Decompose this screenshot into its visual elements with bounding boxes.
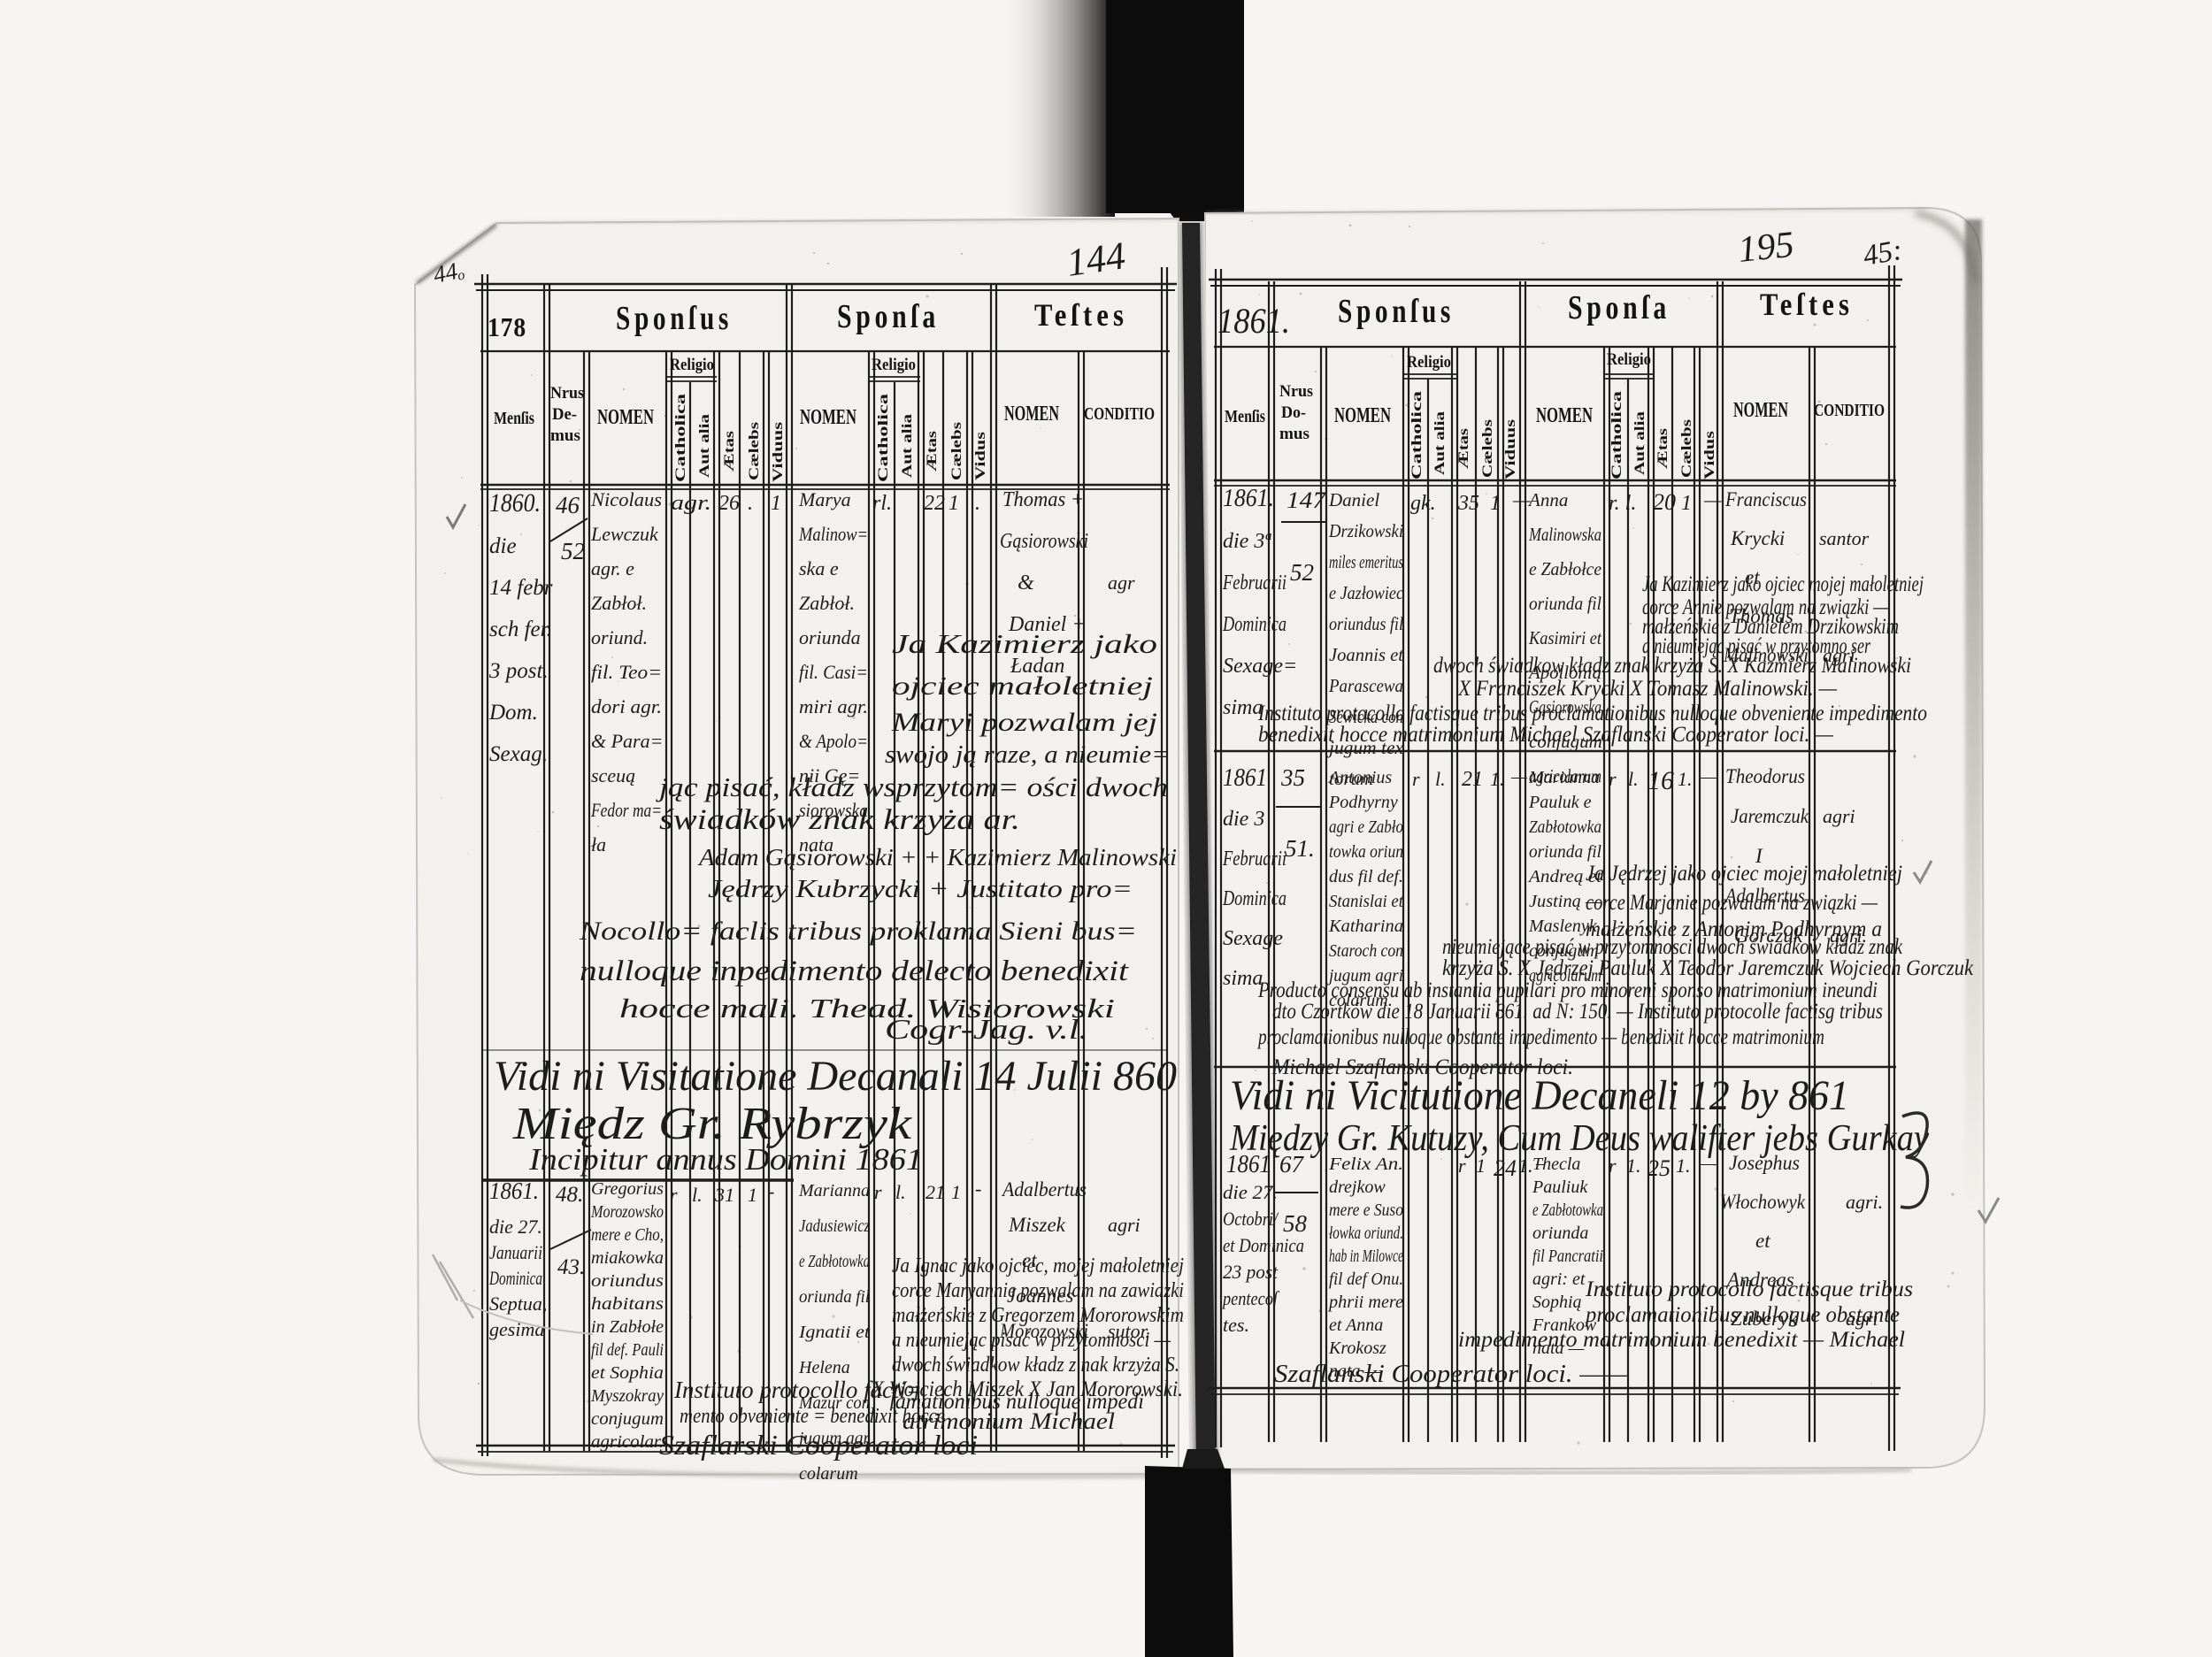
svg-text:oriunda fil: oriunda fil	[1529, 842, 1601, 862]
svg-text:mere e Suso: mere e Suso	[1329, 1201, 1403, 1220]
svg-text:corce Maryannie pozwalam na za: corce Maryannie pozwalam na zawiazki	[892, 1279, 1184, 1302]
svg-text:Vidus: Vidus	[1702, 431, 1717, 479]
svg-text:mere e Cho,: mere e Cho,	[591, 1225, 664, 1245]
svg-text:Dom.: Dom.	[488, 701, 538, 725]
svg-text:phrii mere: phrii mere	[1327, 1293, 1403, 1312]
svg-text:Aut alia: Aut alia	[697, 414, 712, 478]
svg-text:Thomas +: Thomas +	[1002, 488, 1084, 511]
svg-text:NOMEN: NOMEN	[597, 406, 654, 429]
svg-text:fil def Onu.: fil def Onu.	[1329, 1270, 1403, 1289]
svg-text:147: 147	[1286, 487, 1326, 513]
svg-text:NOMEN: NOMEN	[1334, 404, 1391, 427]
svg-text:Ignatii et: Ignatii et	[798, 1323, 871, 1342]
svg-text:Miszek: Miszek	[1008, 1214, 1066, 1236]
svg-text:Zabłotowka: Zabłotowka	[1529, 817, 1601, 837]
svg-text:52: 52	[1290, 559, 1314, 586]
svg-text:.: .	[975, 492, 980, 515]
svg-text:52: 52	[561, 538, 585, 564]
svg-text:impedimento matrimonium bene: impedimento matrimonium benedixit — Mich…	[1458, 1328, 1905, 1352]
svg-text:łowka oriund.: łowka oriund.	[1329, 1224, 1403, 1243]
svg-text:1.: 1.	[1490, 768, 1505, 790]
svg-text:Szaflanski Cooperator loci.: Szaflanski Cooperator loci. ——	[1274, 1360, 1628, 1388]
svg-text:Septua,: Septua,	[489, 1293, 547, 1315]
svg-text:Nicolaus: Nicolaus	[590, 488, 662, 510]
svg-text:Religio: Religio	[1607, 350, 1651, 369]
svg-text:23 post: 23 post	[1223, 1261, 1279, 1283]
svg-text:Kasimiri et: Kasimiri et	[1528, 627, 1602, 648]
svg-text:świadków znak krzyża ar.: świadków znak krzyża ar.	[659, 804, 1020, 836]
svg-text:Januarii: Januarii	[489, 1241, 542, 1263]
svg-text:e Zabłotowka: e Zabłotowka	[799, 1252, 870, 1271]
svg-text:Krokosz: Krokosz	[1328, 1339, 1386, 1358]
svg-text:rl.: rl.	[872, 492, 892, 515]
svg-text:r: r	[670, 1184, 678, 1206]
svg-text:1861.: 1861.	[1217, 301, 1290, 341]
svg-text:Cælebs: Cælebs	[1480, 419, 1495, 478]
svg-text:&: &	[1018, 572, 1034, 595]
svg-text:1: 1	[748, 1184, 757, 1206]
svg-text:Instituto protocollo facti=: Instituto protocollo facti=	[673, 1377, 922, 1403]
svg-text:benedixit hocce matrimonium: benedixit hocce matrimonium Michael Szaf…	[1258, 723, 1834, 747]
svg-text:r: r	[1609, 768, 1617, 790]
svg-text:1.: 1.	[1676, 1155, 1691, 1177]
svg-text:r: r	[1609, 1155, 1617, 1177]
svg-text:Nocollo= faclis tribus prok: Nocollo= faclis tribus proklama Sieni bu…	[579, 917, 1137, 946]
svg-text:drejkow: drejkow	[1329, 1178, 1386, 1197]
svg-text:De-: De-	[552, 405, 577, 424]
svg-text:14 febr: 14 febr	[489, 576, 553, 600]
svg-text:Adalbertus: Adalbertus	[1001, 1178, 1087, 1201]
svg-text:16: 16	[1647, 766, 1674, 795]
svg-text:oriunda: oriunda	[1532, 1224, 1588, 1243]
svg-text:45:: 45:	[1861, 234, 1905, 272]
svg-text:Zabłoł.: Zabłoł.	[799, 592, 855, 614]
svg-text:Teſtes: Teſtes	[1760, 287, 1854, 322]
svg-text:sceuą: sceuą	[591, 764, 635, 786]
svg-text:Krycki: Krycki	[1730, 527, 1785, 549]
svg-text:Ja Kazimierz jako ojciec moj: Ja Kazimierz jako ojciec mojej małoletni…	[1642, 572, 1924, 596]
svg-text:miles emeritus: miles emeritus	[1329, 551, 1403, 572]
svg-text:Nrus: Nrus	[1279, 382, 1313, 401]
svg-text:Pauliuk: Pauliuk	[1532, 1178, 1588, 1197]
svg-text:proclamationibus nullogue ob: proclamationibus nullogue obstante	[1584, 1303, 1900, 1327]
svg-text:l.: l.	[692, 1184, 703, 1206]
svg-text:Włochowyk: Włochowyk	[1720, 1191, 1806, 1213]
svg-text:colarum: colarum	[799, 1464, 858, 1484]
svg-text:Ætas: Ætas	[1655, 428, 1671, 469]
svg-text:Do-: Do-	[1281, 403, 1306, 422]
svg-text:Podhyrny: Podhyrny	[1328, 793, 1398, 812]
svg-text:Marya: Marya	[798, 488, 851, 510]
svg-text:1: 1	[771, 492, 781, 515]
svg-text:& Para=: & Para=	[591, 730, 663, 752]
svg-text:Jaremczuk: Jaremczuk	[1731, 805, 1809, 827]
svg-text:dori agr.: dori agr.	[591, 695, 662, 717]
svg-text:oriundus fil: oriundus fil	[1329, 613, 1403, 634]
svg-text:1: 1	[1681, 492, 1692, 515]
svg-text:Malinowska: Malinowska	[1528, 524, 1601, 545]
svg-text:r: r	[874, 1181, 882, 1203]
svg-text:oriund.: oriund.	[591, 626, 648, 648]
svg-text:Dominica: Dominica	[1222, 887, 1286, 910]
svg-text:Gregorius: Gregorius	[591, 1179, 664, 1199]
svg-text:Aut alia: Aut alia	[1632, 411, 1647, 475]
svg-text:agr.: agr.	[671, 492, 711, 515]
svg-text:Nrus: Nrus	[550, 384, 584, 403]
svg-text:Aut alia: Aut alia	[1432, 411, 1448, 475]
svg-text:proclamationibus nulloque obst: proclamationibus nulloque obstante imped…	[1256, 1025, 1824, 1049]
svg-text:Cælebs: Cælebs	[1679, 419, 1694, 478]
svg-text:Myszokray: Myszokray	[590, 1386, 664, 1406]
svg-text:Franciscus: Franciscus	[1724, 488, 1807, 510]
svg-text:et Anna: et Anna	[1329, 1316, 1383, 1335]
svg-text:43.: 43.	[557, 1255, 585, 1279]
svg-text:małżeńskie z Gregorzem Mororow: małżeńskie z Gregorzem Mororowskim	[892, 1304, 1184, 1327]
svg-text:pentecoſ: pentecoſ	[1221, 1287, 1279, 1309]
svg-text:agr: agr	[1108, 572, 1135, 594]
svg-text:Religio: Religio	[670, 356, 714, 374]
svg-text:CONDITIO: CONDITIO	[1814, 401, 1885, 420]
svg-text:santor: santor	[1819, 527, 1870, 549]
svg-text:agr. e: agr. e	[591, 557, 634, 579]
svg-text:Dominica: Dominica	[488, 1267, 542, 1289]
svg-text:ła: ła	[591, 833, 606, 855]
svg-text:Menſis: Menſis	[1225, 407, 1265, 426]
svg-text:Viduus: Viduus	[771, 422, 786, 482]
svg-text:et: et	[1755, 1230, 1770, 1252]
svg-text:51.: 51.	[1285, 835, 1315, 862]
svg-text:nulloque inpedimento delecto: nulloque inpedimento delecto benedixit	[580, 955, 1129, 987]
svg-text:die 27.: die 27.	[1223, 1181, 1278, 1203]
svg-text:mus: mus	[550, 426, 580, 445]
svg-text:Stanislai et: Stanislai et	[1329, 892, 1403, 911]
svg-text:Menſis: Menſis	[494, 409, 534, 428]
svg-text:—: —	[1510, 767, 1527, 786]
svg-text:Ja Kazimierz jako: Ja Kazimierz jako	[892, 628, 1157, 659]
svg-text:oriundus: oriundus	[591, 1271, 664, 1291]
svg-text:Marianna: Marianna	[798, 1181, 870, 1201]
svg-text:Incipitur annus Domini 1861: Incipitur annus Domini 1861	[528, 1142, 923, 1177]
svg-text:& Apolo=: & Apolo=	[799, 730, 868, 752]
svg-text:Jędrzy Kubrzycki + Justit: Jędrzy Kubrzycki + Justitato pro=	[708, 876, 1133, 903]
svg-text:35: 35	[1457, 492, 1479, 515]
svg-text:Sponſus: Sponſus	[616, 300, 733, 337]
svg-text:48.: 48.	[556, 1183, 583, 1207]
svg-text:-: -	[768, 1180, 774, 1202]
svg-text:Octobri/: Octobri/	[1223, 1208, 1279, 1230]
svg-text:swojo ją raze, a nieumie=: swojo ją raze, a nieumie=	[885, 741, 1170, 769]
svg-text:die 3ª: die 3ª	[1223, 530, 1271, 553]
svg-text:Zabłoł.: Zabłoł.	[591, 592, 647, 614]
svg-text:die 3: die 3	[1223, 808, 1264, 831]
svg-text:agri: agri	[1823, 805, 1855, 827]
svg-text:1.: 1.	[1518, 1155, 1533, 1177]
svg-text:1: 1	[1476, 1155, 1486, 1177]
svg-text:Helena: Helena	[798, 1358, 850, 1377]
svg-text:Religio: Religio	[872, 356, 916, 374]
svg-text:l.: l.	[1435, 768, 1446, 790]
svg-text:—: —	[1512, 488, 1531, 510]
svg-text:Morozowsko: Morozowsko	[590, 1202, 664, 1222]
svg-text:58: 58	[1283, 1210, 1308, 1237]
svg-text:Vidi ni Vicitutione Decaneli: Vidi ni Vicitutione Decaneli 12 by 861	[1230, 1072, 1849, 1119]
svg-text:—: —	[1703, 488, 1722, 510]
svg-text:Daniel: Daniel	[1328, 489, 1379, 510]
svg-text:ska e: ska e	[799, 557, 839, 579]
svg-text:21: 21	[1462, 768, 1483, 791]
svg-text:mento obveniente = benedixit h: mento obveniente = benedixit hocce	[680, 1405, 945, 1428]
svg-text:krzyża S. X Jędrzej Pauluk X: krzyża S. X Jędrzej Pauluk X Teodor Jare…	[1442, 956, 1974, 980]
svg-text:Jadusiewicz: Jadusiewicz	[799, 1216, 870, 1236]
svg-text:oriunda fil: oriunda fil	[799, 1287, 870, 1307]
svg-text:NOMEN: NOMEN	[1733, 399, 1788, 422]
svg-text:et Sophia: et Sophia	[591, 1363, 664, 1383]
svg-text:Vidus: Vidus	[973, 432, 988, 480]
svg-text:r: r	[1458, 1155, 1466, 1177]
svg-text:Catholica: Catholica	[876, 394, 891, 482]
svg-text:Malinow=: Malinow=	[798, 523, 868, 545]
svg-text:1860.: 1860.	[489, 488, 541, 518]
svg-text:fil. Teo=: fil. Teo=	[591, 661, 662, 683]
svg-text:die: die	[489, 534, 517, 558]
svg-text:Sophią: Sophią	[1532, 1293, 1582, 1312]
svg-text:—: —	[1700, 1154, 1717, 1173]
svg-text:Ætas: Ætas	[925, 431, 940, 472]
svg-text:e Zabłotowka: e Zabłotowka	[1532, 1201, 1603, 1220]
svg-text:Teſtes: Teſtes	[1034, 297, 1128, 333]
svg-text:.: .	[748, 492, 753, 515]
svg-text:agri.: agri.	[1846, 1191, 1883, 1213]
svg-text:24: 24	[1494, 1155, 1517, 1181]
svg-text:fil Pancratii: fil Pancratii	[1532, 1247, 1603, 1266]
svg-text:agri: agri	[1108, 1214, 1141, 1236]
svg-text:Aut alia: Aut alia	[900, 414, 915, 478]
svg-text:towka oriun: towka oriun	[1329, 842, 1403, 862]
svg-text:Catholica: Catholica	[673, 394, 688, 482]
svg-text:Sponſa: Sponſa	[837, 298, 940, 335]
svg-text:dus fil def.: dus fil def.	[1329, 867, 1403, 886]
svg-text:Sexage=: Sexage=	[1223, 655, 1297, 678]
svg-text:67: 67	[1279, 1151, 1305, 1178]
svg-text:Vidi ni Visitatione Decanali: Vidi ni Visitatione Decanali 14 Julii 86…	[494, 1053, 1177, 1100]
svg-text:tes.: tes.	[1223, 1314, 1249, 1336]
svg-text:1: 1	[1490, 492, 1501, 515]
svg-text:Sexag.: Sexag.	[489, 742, 548, 766]
svg-text:a nieumiejąc pisać w przytomno: a nieumiejąc pisać w przytomnosci —	[892, 1329, 1171, 1352]
svg-text:Pauluk e: Pauluk e	[1528, 793, 1592, 812]
svg-text:Catholica: Catholica	[1409, 391, 1425, 479]
svg-text:miri agr.: miri agr.	[799, 695, 868, 717]
svg-text:Anna: Anna	[1527, 489, 1568, 510]
svg-text:ojciec małoletniej: ojciec małoletniej	[892, 671, 1153, 701]
svg-text:Ja Jędrzej jako ojciec mojej m: Ja Jędrzej jako ojciec mojej małoletniej	[1586, 862, 1902, 886]
svg-text:Sexage: Sexage	[1223, 927, 1283, 950]
svg-text:fil. Casi=: fil. Casi=	[799, 661, 868, 683]
svg-text:Cælebs: Cælebs	[747, 422, 762, 480]
svg-text:22: 22	[924, 492, 945, 515]
svg-text:Catholica: Catholica	[1609, 391, 1624, 479]
svg-text:1861.: 1861.	[489, 1178, 539, 1204]
svg-text:oriunda fil: oriunda fil	[1529, 593, 1601, 614]
svg-text:Ætas: Ætas	[1456, 428, 1471, 469]
svg-text:CONDITIO: CONDITIO	[1084, 404, 1155, 424]
svg-text:mus: mus	[1279, 425, 1310, 443]
svg-text:r. l.: r. l.	[1609, 492, 1636, 515]
svg-text:e Jazłowiec: e Jazłowiec	[1329, 582, 1404, 603]
svg-text:fil def. Pauli: fil def. Pauli	[591, 1340, 664, 1360]
svg-text:die 27.: die 27.	[489, 1216, 542, 1238]
svg-text:oriunda: oriunda	[799, 626, 861, 648]
svg-text:Marianna: Marianna	[1528, 768, 1600, 787]
svg-text:l.: l.	[895, 1181, 906, 1203]
svg-text:Szaflarski Cooperator loci: Szaflarski Cooperator loci	[659, 1429, 978, 1461]
svg-text:1: 1	[949, 492, 959, 515]
svg-text:Gąsiorowski: Gąsiorowski	[1000, 530, 1088, 553]
svg-text:178: 178	[488, 311, 526, 342]
svg-text:Dominica: Dominica	[1222, 613, 1286, 636]
svg-text:agri: et: agri: et	[1532, 1270, 1586, 1289]
svg-text:Między Gr. Kutuzy, Cum Deus w: Między Gr. Kutuzy, Cum Deus walifter jeb…	[1229, 1118, 1929, 1159]
svg-text:1: 1	[951, 1181, 961, 1203]
svg-text:Katharina: Katharina	[1328, 917, 1403, 936]
svg-text:in Zabłołe: in Zabłołe	[591, 1317, 664, 1337]
svg-text:26: 26	[718, 492, 740, 515]
svg-text:Theodorus: Theodorus	[1725, 765, 1805, 787]
svg-text:miakowka: miakowka	[591, 1248, 664, 1268]
svg-text:agri e Zabło: agri e Zabło	[1329, 817, 1403, 837]
svg-text:Viduus: Viduus	[1503, 419, 1518, 479]
svg-text:dwoch świadkow kładz z nak krz: dwoch świadkow kładz z nak krzyża S.	[892, 1354, 1179, 1377]
svg-text:Fedor ma=: Fedor ma=	[590, 799, 662, 821]
svg-text:r: r	[1412, 768, 1420, 790]
svg-text:agricolar.: agricolar.	[591, 1432, 664, 1452]
svg-text:NOMEN: NOMEN	[1004, 403, 1059, 426]
svg-text:25: 25	[1647, 1155, 1671, 1181]
svg-text:sima: sima	[1223, 967, 1263, 990]
svg-text:3 post.: 3 post.	[488, 659, 549, 683]
svg-text:Ja Ignac jako ojciec, mojej ma: Ja Ignac jako ojciec, mojej małoletniej	[892, 1254, 1184, 1277]
svg-text:Februarii: Februarii	[1222, 572, 1286, 595]
svg-text:Drzikowski: Drzikowski	[1328, 520, 1403, 541]
svg-text:Parascewa: Parascewa	[1328, 675, 1403, 696]
svg-text:195: 195	[1736, 225, 1795, 271]
svg-text:NOMEN: NOMEN	[800, 406, 856, 429]
svg-text:Felix An.: Felix An.	[1328, 1155, 1403, 1174]
svg-text:nieumiejące pisać w przytomnos: nieumiejące pisać w przytomnosci dwoch ś…	[1442, 935, 1903, 959]
svg-text:21: 21	[926, 1181, 945, 1203]
svg-text:l.: l.	[1628, 768, 1639, 790]
svg-text:Staroch con: Staroch con	[1329, 941, 1403, 961]
svg-text:Instituto protocollo factisque: Instituto protocollo factisque tribus pr…	[1257, 702, 1927, 725]
svg-text:conjugum: conjugum	[591, 1409, 664, 1429]
svg-text:hab in Milowce: hab in Milowce	[1329, 1247, 1403, 1266]
svg-text:dto Czortków die 18 Januarii: dto Czortków die 18 Januarii 861. ad N: …	[1272, 1000, 1883, 1024]
svg-text:1.: 1.	[1626, 1155, 1641, 1177]
svg-text:Adam Gąsiorowski + + Kazimie: Adam Gąsiorowski + + Kazimierz Malinowsk…	[697, 844, 1177, 871]
svg-text:corce Marjanie pozwalam na zwi: corce Marjanie pozwalam na związki —	[1586, 891, 1878, 915]
svg-text:Joannis et: Joannis et	[1329, 644, 1404, 665]
svg-text:1.: 1.	[1678, 768, 1693, 790]
svg-text:46: 46	[556, 492, 580, 518]
svg-text:gk.: gk.	[1410, 492, 1436, 515]
svg-text:1861.: 1861.	[1223, 485, 1274, 512]
svg-text:Sponſus: Sponſus	[1338, 293, 1455, 330]
svg-text:Sponſa: Sponſa	[1568, 289, 1671, 326]
svg-text:sch fer.: sch fer.	[489, 618, 552, 641]
svg-text:Maryi pozwalam jej: Maryi pozwalam jej	[891, 708, 1157, 737]
svg-text:Religio: Religio	[1407, 353, 1451, 372]
svg-text:Februarii: Februarii	[1222, 848, 1286, 871]
svg-text:Antonius: Antonius	[1327, 768, 1392, 787]
svg-text:dwoch świadkow kładz znak krzy: dwoch świadkow kładz znak krzyża S. X Ka…	[1433, 654, 1911, 678]
svg-text:jąc pisać, kładz wsprzytom= oś: jąc pisać, kładz wsprzytom= ości dwoch	[655, 771, 1168, 802]
svg-text:-: -	[975, 1178, 981, 1200]
svg-text:X Franciszek Krycki X Tomasz: X Franciszek Krycki X Tomasz Malinowski.…	[1457, 677, 1838, 701]
svg-text:Cælebs: Cælebs	[949, 422, 964, 480]
svg-text:35: 35	[1280, 764, 1305, 791]
svg-text:31: 31	[714, 1184, 734, 1206]
svg-text:Instituto protocollo factisq: Instituto protocollo factisque tribus	[1585, 1277, 1913, 1301]
svg-text:sima: sima	[1223, 696, 1263, 719]
svg-text:144: 144	[1064, 234, 1128, 285]
svg-text:1861: 1861	[1223, 764, 1267, 792]
svg-text:habitans: habitans	[591, 1294, 664, 1314]
svg-text:1861: 1861	[1226, 1151, 1271, 1178]
svg-text:Josephus: Josephus	[1729, 1152, 1800, 1174]
svg-text:—: —	[1700, 767, 1717, 786]
svg-text:Ætas: Ætas	[722, 431, 737, 472]
svg-text:e Zabłołce: e Zabłołce	[1529, 558, 1601, 579]
svg-text:et Dominica: et Dominica	[1223, 1234, 1304, 1256]
svg-text:Lewczuk: Lewczuk	[590, 523, 659, 545]
svg-text:Cogr-Jag. v.l.: Cogr-Jag. v.l.	[885, 1013, 1088, 1045]
svg-text:Producto consensu ab instantia: Producto consensu ab instantia pupilari …	[1257, 978, 1878, 1002]
svg-text:Thecla: Thecla	[1532, 1155, 1580, 1174]
svg-text:NOMEN: NOMEN	[1536, 404, 1593, 427]
svg-text:20: 20	[1653, 489, 1676, 515]
